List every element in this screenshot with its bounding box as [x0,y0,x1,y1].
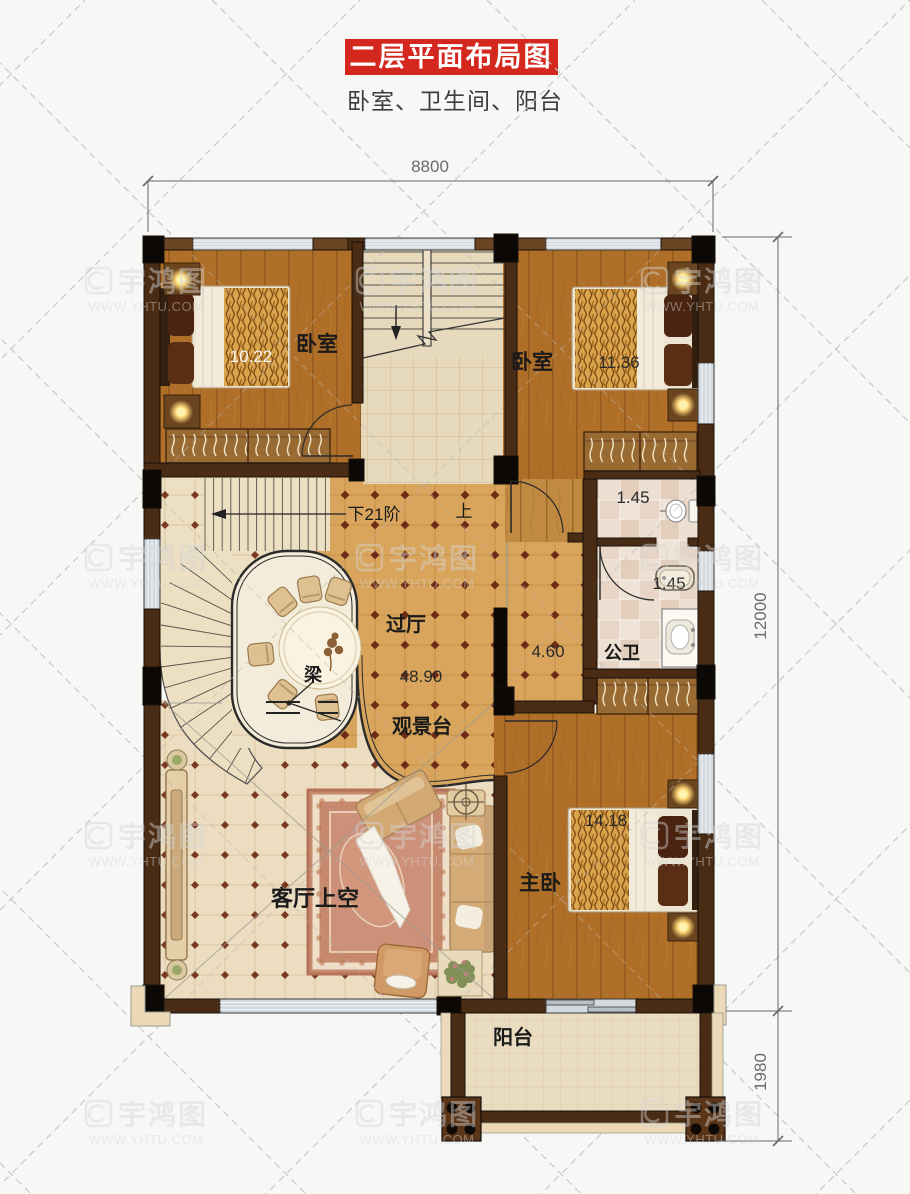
svg-text:WWW.YHTU.COM: WWW.YHTU.COM [88,299,203,314]
svg-text:WWW.YHTU.COM: WWW.YHTU.COM [88,576,203,591]
svg-text:8800: 8800 [411,157,449,176]
svg-text:48.90: 48.90 [400,667,443,686]
svg-text:10.22: 10.22 [230,347,273,366]
svg-text:公卫: 公卫 [604,643,640,663]
svg-text:WWW.YHTU.COM: WWW.YHTU.COM [644,299,759,314]
svg-text:WWW.YHTU.COM: WWW.YHTU.COM [88,854,203,869]
svg-text:客厅上空: 客厅上空 [271,886,359,911]
svg-text:宇鸿图: 宇鸿图 [118,1099,208,1130]
svg-text:WWW.YHTU.COM: WWW.YHTU.COM [644,576,759,591]
svg-text:观景台: 观景台 [392,714,452,738]
svg-text:WWW.YHTU.COM: WWW.YHTU.COM [359,299,474,314]
svg-text:宇鸿图: 宇鸿图 [674,266,764,297]
svg-text:12000: 12000 [751,592,770,639]
svg-text:过厅: 过厅 [386,613,426,636]
svg-text:下21阶: 下21阶 [348,505,401,524]
svg-text:宇鸿图: 宇鸿图 [118,821,208,852]
svg-text:11.36: 11.36 [598,353,639,372]
svg-text:WWW.YHTU.COM: WWW.YHTU.COM [644,854,759,869]
svg-text:卧室: 卧室 [296,332,338,356]
svg-text:14.18: 14.18 [585,811,628,830]
svg-text:WWW.YHTU.COM: WWW.YHTU.COM [359,1132,474,1147]
svg-text:1.45: 1.45 [616,488,649,507]
svg-text:1980: 1980 [751,1053,770,1091]
svg-text:宇鸿图: 宇鸿图 [118,266,208,297]
svg-text:主卧: 主卧 [519,872,561,895]
svg-text:卧室、卫生间、阳台: 卧室、卫生间、阳台 [347,88,563,114]
svg-text:阳台: 阳台 [493,1025,533,1049]
svg-text:二层平面布局图: 二层平面布局图 [350,42,553,72]
svg-text:上: 上 [456,502,473,521]
svg-text:宇鸿图: 宇鸿图 [674,821,764,852]
svg-text:宇鸿图: 宇鸿图 [674,1099,764,1130]
svg-text:宇鸿图: 宇鸿图 [389,821,479,852]
svg-text:宇鸿图: 宇鸿图 [389,266,479,297]
svg-text:WWW.YHTU.COM: WWW.YHTU.COM [359,854,474,869]
svg-text:梁: 梁 [303,664,323,685]
svg-text:WWW.YHTU.COM: WWW.YHTU.COM [359,576,474,591]
svg-text:宇鸿图: 宇鸿图 [118,543,208,574]
svg-text:宇鸿图: 宇鸿图 [389,543,479,574]
svg-text:WWW.YHTU.COM: WWW.YHTU.COM [644,1132,759,1147]
svg-text:WWW.YHTU.COM: WWW.YHTU.COM [88,1132,203,1147]
svg-text:宇鸿图: 宇鸿图 [389,1099,479,1130]
svg-text:卧室: 卧室 [511,350,553,374]
svg-text:宇鸿图: 宇鸿图 [674,543,764,574]
svg-text:4.60: 4.60 [531,642,564,661]
